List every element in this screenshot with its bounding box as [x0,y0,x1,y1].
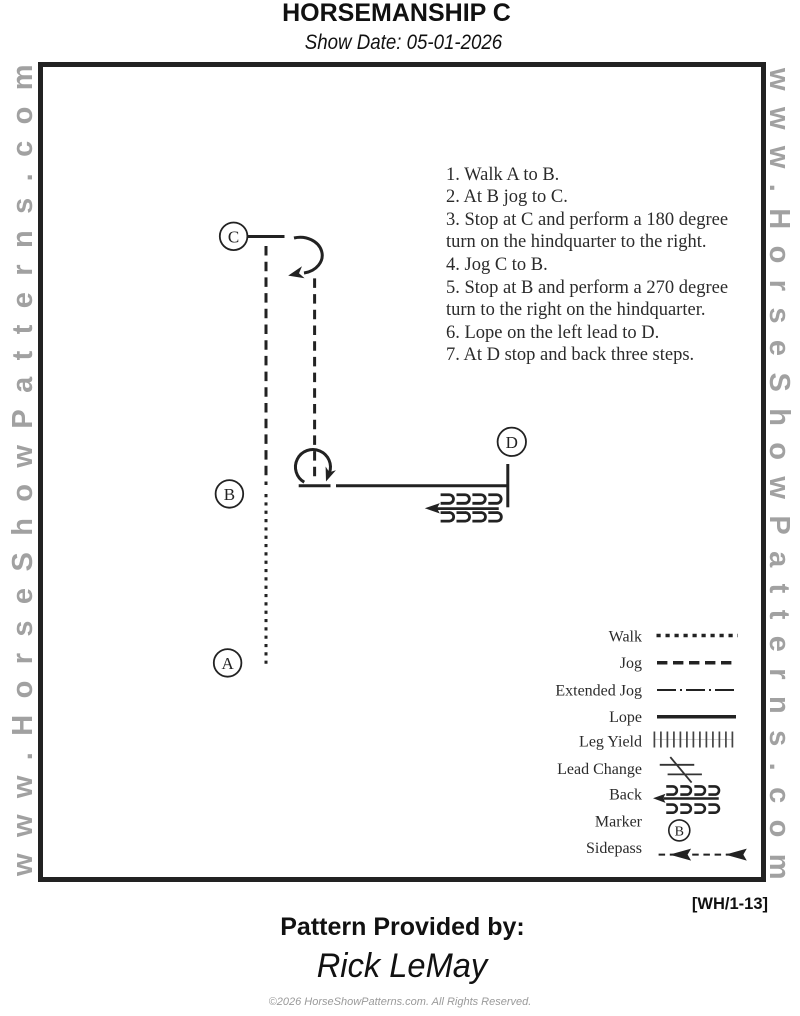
svg-text:D: D [506,433,518,452]
svg-text:B: B [224,485,235,504]
svg-text:Leg Yield: Leg Yield [579,734,642,751]
svg-text:Marker: Marker [595,813,643,830]
svg-text:Lead Change: Lead Change [557,761,642,778]
svg-text:Lope: Lope [609,709,642,726]
svg-text:Back: Back [609,786,642,803]
svg-text:B: B [675,824,684,839]
svg-text:A: A [221,654,234,673]
svg-text:C: C [228,227,239,246]
svg-text:Extended Jog: Extended Jog [555,682,642,699]
svg-text:Jog: Jog [620,655,642,672]
svg-text:Walk: Walk [609,629,642,646]
svg-text:Sidepass: Sidepass [586,840,642,857]
